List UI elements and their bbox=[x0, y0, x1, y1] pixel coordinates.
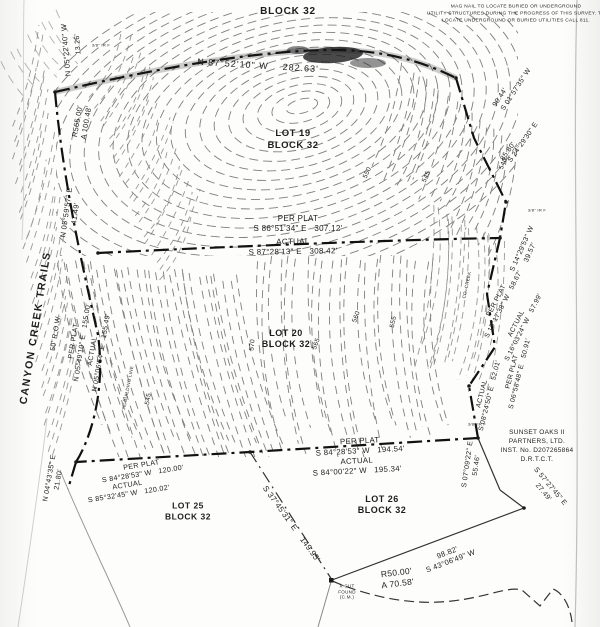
curve-r50: R50.00' A 70.58' bbox=[379, 565, 414, 590]
lot-line-south-of-xcut bbox=[318, 582, 331, 627]
plat-map: BLOCK 32MAG NAIL TO LOCATE BURIED OR UND… bbox=[0, 0, 600, 627]
boundary-west bbox=[55, 92, 100, 462]
actual-mid: ACTUAL S 87°28'13" E 308.42' bbox=[248, 236, 337, 258]
boundary-south bbox=[76, 438, 478, 462]
monument-irf-1: 3/8" IR F bbox=[92, 43, 110, 48]
boundary-west-stub bbox=[68, 462, 76, 489]
utility-note: MAG NAIL TO LOCATE BURIED OR UNDERGROUND… bbox=[427, 5, 600, 26]
margin-line-topleft bbox=[22, 0, 24, 240]
lot19-label: LOT 19 BLOCK 32 bbox=[268, 128, 319, 152]
monument-irf-2: 3/8" IR F bbox=[528, 208, 546, 213]
lot20-label: LOT 20 BLOCK 32 bbox=[262, 328, 311, 351]
lot26-label: LOT 26 BLOCK 32 bbox=[358, 494, 407, 517]
monument-irf-3: 3/8" IR F bbox=[468, 422, 486, 427]
lot25-label: LOT 25 BLOCK 32 bbox=[165, 500, 211, 521]
dist-13-26: 13.26' bbox=[74, 33, 85, 54]
xcut-note: X CUT FOUND (C.M.) bbox=[338, 584, 356, 601]
owner-block: SUNSET OAKS II PARTNERS, LTD. INST. No. … bbox=[501, 428, 574, 464]
block-label-top: BLOCK 32 bbox=[260, 6, 316, 19]
perplat-mid: PER PLAT S 86°51'34" E 307.12' bbox=[254, 214, 343, 234]
xcut-monument bbox=[329, 578, 334, 583]
curve-line-r50 bbox=[332, 581, 572, 622]
property-boundary bbox=[55, 50, 506, 489]
lot-line-2749 bbox=[500, 490, 524, 508]
fold-line-left bbox=[18, 418, 47, 627]
fold-line-right bbox=[575, 0, 577, 627]
ink-smudge-2 bbox=[350, 58, 386, 68]
contour-570: 570 bbox=[248, 339, 257, 351]
